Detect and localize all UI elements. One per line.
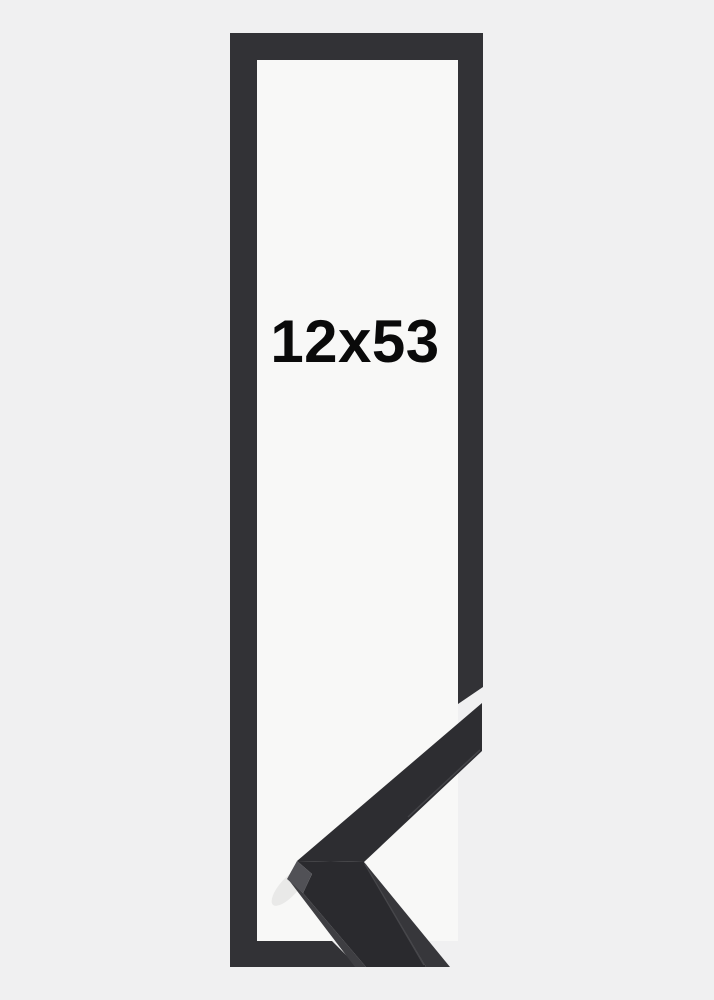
- frame-top-bar: [230, 33, 483, 60]
- frame-right-bar: [458, 33, 483, 704]
- size-label: 12x53: [270, 308, 439, 375]
- frame-inner-mat-area: [257, 60, 458, 941]
- frame-product-image: 12x53: [0, 0, 714, 1000]
- frame-product-canvas: 12x53: [0, 0, 714, 1000]
- frame-left-bar: [230, 33, 257, 967]
